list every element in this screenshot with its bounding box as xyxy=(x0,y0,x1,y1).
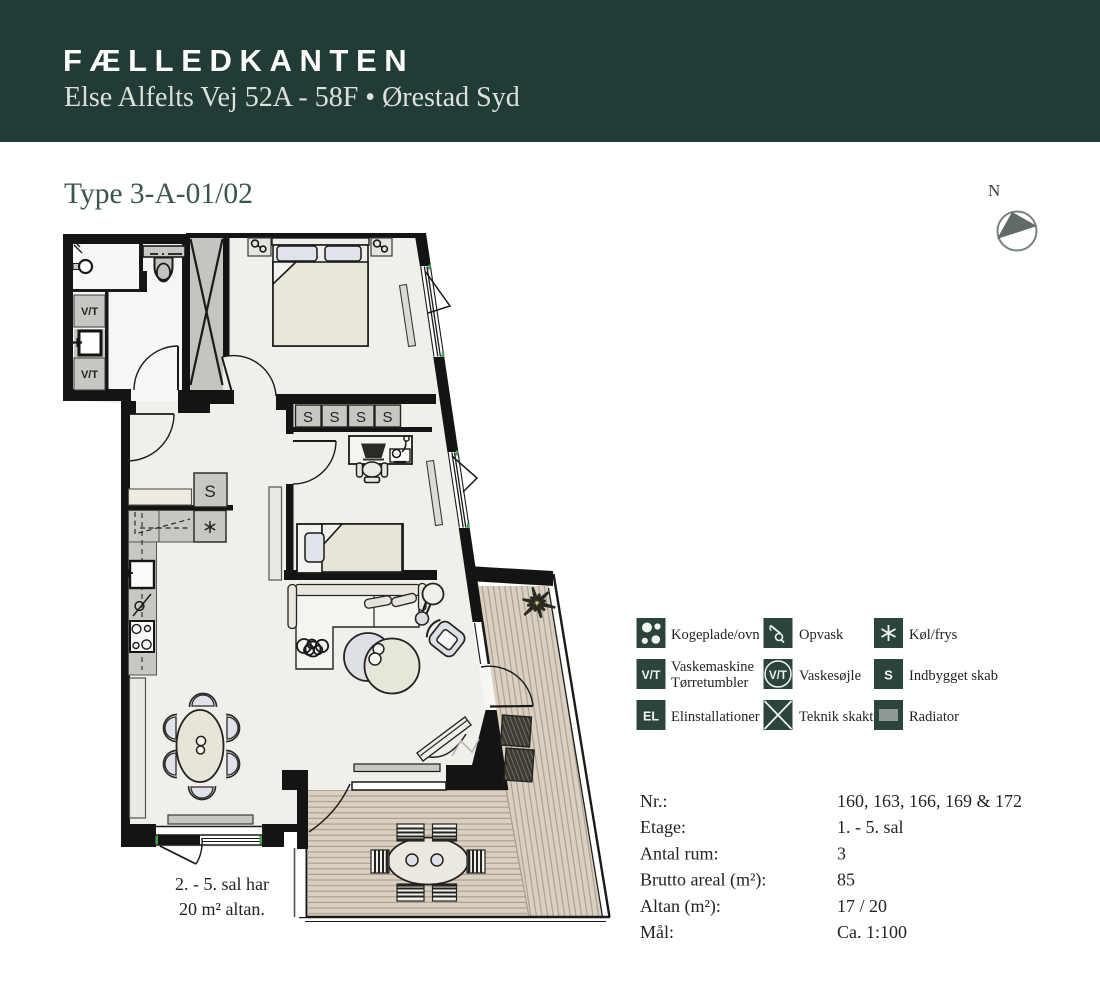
svg-text:Type 3-A-01/02: Type 3-A-01/02 xyxy=(64,178,253,210)
svg-text:Tørretumbler: Tørretumbler xyxy=(671,675,748,691)
svg-text:Elinstallationer: Elinstallationer xyxy=(671,709,760,725)
svg-text:Nr.:: Nr.: xyxy=(640,791,668,811)
svg-text:Etage:: Etage: xyxy=(640,817,686,837)
svg-text:S: S xyxy=(204,482,215,501)
svg-text:Indbygget skab: Indbygget skab xyxy=(909,668,998,684)
svg-text:Ca. 1:100: Ca. 1:100 xyxy=(837,922,907,942)
svg-text:V/T: V/T xyxy=(81,306,98,318)
svg-text:S: S xyxy=(329,409,339,426)
svg-text:Antal rum:: Antal rum: xyxy=(640,844,719,864)
svg-text:Køl/frys: Køl/frys xyxy=(909,627,958,643)
svg-text:V/T: V/T xyxy=(642,668,661,682)
svg-text:Vaskesøjle: Vaskesøjle xyxy=(799,668,861,684)
svg-text:EL: EL xyxy=(643,710,659,724)
svg-text:Vaskemaskine: Vaskemaskine xyxy=(671,659,754,675)
svg-text:Altan (m²):: Altan (m²): xyxy=(640,896,721,917)
svg-text:Teknik skakt: Teknik skakt xyxy=(799,709,873,725)
svg-text:S: S xyxy=(884,668,893,683)
svg-text:2. - 5. sal har: 2. - 5. sal har xyxy=(175,874,269,894)
svg-text:17 / 20: 17 / 20 xyxy=(837,896,887,916)
svg-text:Opvask: Opvask xyxy=(799,627,844,643)
svg-text:Brutto areal (m²):: Brutto areal (m²): xyxy=(640,870,766,891)
svg-text:Mål:: Mål: xyxy=(640,922,674,942)
svg-text:Kogeplade/ovn: Kogeplade/ovn xyxy=(671,627,760,643)
svg-text:V/T: V/T xyxy=(81,369,98,381)
svg-text:20 m² altan.: 20 m² altan. xyxy=(179,899,265,919)
svg-text:S: S xyxy=(382,409,392,426)
svg-text:FÆLLEDKANTEN: FÆLLEDKANTEN xyxy=(63,43,414,78)
svg-text:N: N xyxy=(988,181,1000,200)
svg-text:85: 85 xyxy=(837,870,855,890)
svg-text:Else Alfelts Vej 52A - 58F • Ø: Else Alfelts Vej 52A - 58F • Ørestad Syd xyxy=(64,82,520,113)
svg-text:Radiator: Radiator xyxy=(909,709,959,725)
svg-text:V/T: V/T xyxy=(769,670,787,682)
svg-text:3: 3 xyxy=(837,844,846,864)
svg-text:1. - 5. sal: 1. - 5. sal xyxy=(837,817,904,837)
svg-text:160, 163, 166, 169 & 172: 160, 163, 166, 169 & 172 xyxy=(837,791,1022,811)
svg-text:S: S xyxy=(303,409,313,426)
svg-text:S: S xyxy=(356,409,366,426)
